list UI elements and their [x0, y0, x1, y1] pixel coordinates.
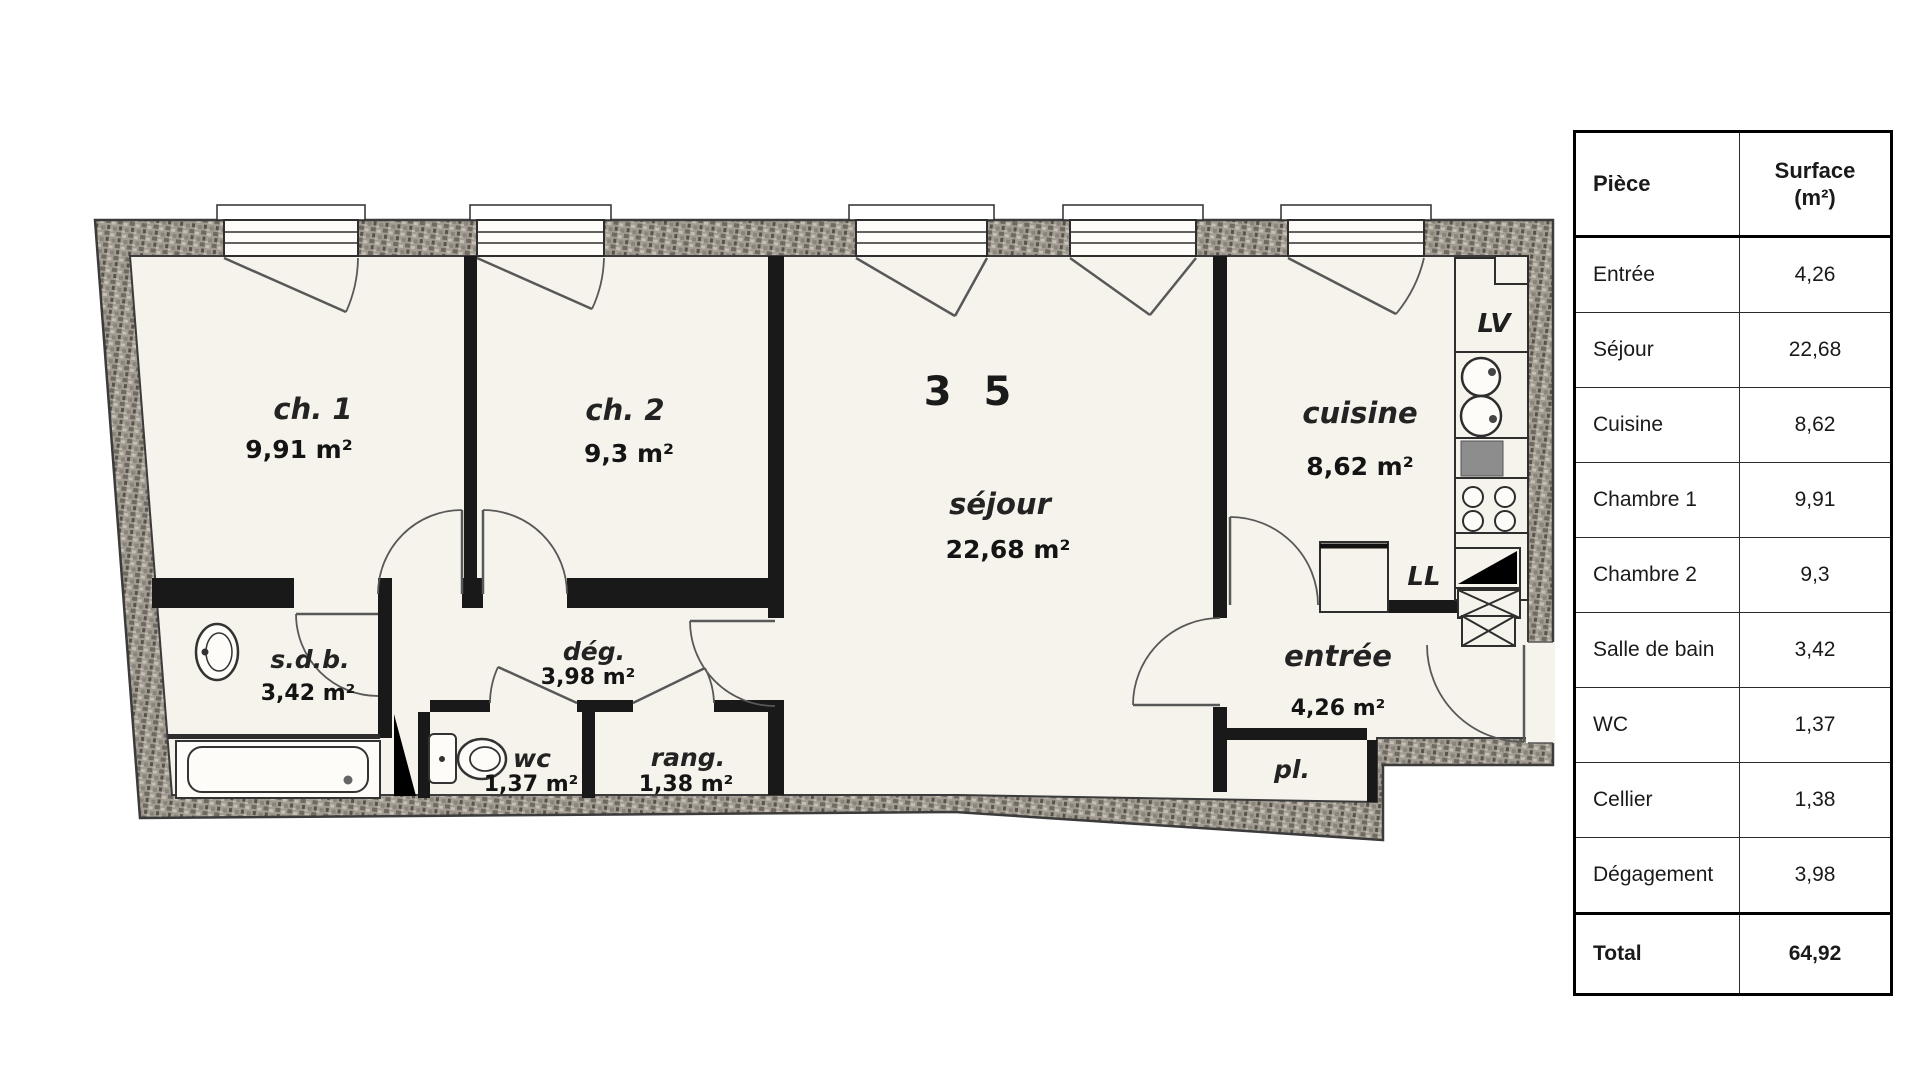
area-wc: 1,37 m²: [484, 772, 579, 797]
counter-notch: [1495, 256, 1528, 284]
area-cuisine: 8,62 m²: [1306, 452, 1413, 481]
room-surface: 1,38: [1739, 763, 1890, 837]
worktop-icon: [1320, 542, 1388, 612]
label-dishwasher: LV: [1477, 309, 1512, 339]
wall-bedrooms-bottom: [567, 578, 768, 608]
table-row: Salle de bain 3,42: [1576, 612, 1890, 687]
table-body: Entrée 4,26 Séjour 22,68 Cuisine 8,62 Ch…: [1576, 235, 1890, 912]
table-row: Cellier 1,38: [1576, 762, 1890, 837]
page: ch. 1 9,91 m² ch. 2 9,3 m² 3 5 séjour 22…: [0, 0, 1920, 1080]
washbasin-icon: [196, 624, 238, 680]
fridge-icon: [1455, 548, 1520, 588]
room-surface: 4,26: [1739, 238, 1890, 312]
room-surface: 8,62: [1739, 388, 1890, 462]
total-value: 64,92: [1739, 915, 1890, 993]
table-row: Chambre 2 9,3: [1576, 537, 1890, 612]
label-cuisine: cuisine: [1302, 396, 1417, 430]
table-row: Dégagement 3,98: [1576, 837, 1890, 912]
table-row: Chambre 1 9,91: [1576, 462, 1890, 537]
wall-sejour-entree: [1213, 256, 1227, 618]
window-ch1: [217, 205, 365, 256]
wall-rang-top: [595, 700, 633, 712]
oven-icon: [1461, 441, 1503, 476]
wall-sdb-deg: [378, 608, 392, 738]
wall-ch2-sejour: [768, 256, 784, 618]
table-header-row: Pièce Surface (m²): [1576, 133, 1890, 235]
label-entree: entrée: [1284, 639, 1392, 673]
wall-ch1-ch2: [464, 256, 477, 582]
wall-entree-placard: [1227, 728, 1367, 740]
table-row: WC 1,37: [1576, 687, 1890, 762]
window-cuisine: [1281, 205, 1431, 256]
wall-stub: [462, 578, 483, 608]
wall-placard-right: [1367, 740, 1377, 802]
wall-wc-top: [430, 700, 490, 712]
label-deg: dég.: [563, 637, 625, 666]
room-name: Chambre 2: [1576, 538, 1739, 612]
label-ch1: ch. 1: [273, 392, 352, 426]
wall-bedrooms-bottom: [152, 578, 294, 608]
label-placard: pl.: [1273, 755, 1310, 784]
room-name: Salle de bain: [1576, 613, 1739, 687]
label-ch2: ch. 2: [585, 393, 664, 427]
label-wc: wc: [513, 744, 551, 773]
table-total-row: Total 64,92: [1576, 912, 1890, 993]
area-ch1: 9,91 m²: [245, 435, 352, 464]
label-rang: rang.: [651, 743, 725, 772]
room-surface: 3,42: [1739, 613, 1890, 687]
bathtub-icon: [176, 741, 380, 798]
table-row: Cuisine 8,62: [1576, 387, 1890, 462]
surface-table: Pièce Surface (m²) Entrée 4,26 Séjour 22…: [1573, 130, 1893, 996]
room-name: Dégagement: [1576, 838, 1739, 912]
unit-number: 3 5: [924, 369, 1021, 415]
room-surface: 3,98: [1739, 838, 1890, 912]
window-ch2: [470, 205, 611, 256]
area-entree: 4,26 m²: [1291, 696, 1386, 721]
label-sdb: s.d.b.: [270, 645, 349, 674]
wall-sejour-entree: [1213, 707, 1227, 792]
area-sejour: 22,68 m²: [946, 535, 1071, 564]
table-header-piece: Pièce: [1576, 133, 1739, 235]
area-deg: 3,98 m²: [541, 665, 636, 690]
table-header-surface: Surface (m²): [1739, 133, 1890, 235]
window-sejour-right: [1063, 205, 1203, 256]
room-name: Cuisine: [1576, 388, 1739, 462]
room-name: Entrée: [1576, 238, 1739, 312]
total-label: Total: [1576, 915, 1739, 993]
room-name: Chambre 1: [1576, 463, 1739, 537]
room-surface: 1,37: [1739, 688, 1890, 762]
room-surface: 9,3: [1739, 538, 1890, 612]
room-name: WC: [1576, 688, 1739, 762]
area-sdb: 3,42 m²: [261, 681, 356, 706]
wall-wc-top: [577, 700, 595, 712]
wall-tub-divider: [168, 734, 380, 739]
wall-stub: [378, 578, 392, 608]
room-name: Séjour: [1576, 313, 1739, 387]
area-rang: 1,38 m²: [639, 772, 734, 797]
table-row: Entrée 4,26: [1576, 235, 1890, 312]
wall-wc-rang: [582, 712, 595, 798]
wall-rang-top: [714, 700, 768, 712]
duct-x-boxes: [1458, 590, 1520, 646]
wall-rang-sejour: [768, 700, 784, 795]
label-sejour: séjour: [949, 487, 1052, 521]
room-surface: 22,68: [1739, 313, 1890, 387]
room-surface: 9,91: [1739, 463, 1890, 537]
table-row: Séjour 22,68: [1576, 312, 1890, 387]
window-sejour-left: [849, 205, 994, 256]
room-name: Cellier: [1576, 763, 1739, 837]
area-ch2: 9,3 m²: [584, 439, 674, 468]
label-washer: LL: [1407, 562, 1440, 592]
